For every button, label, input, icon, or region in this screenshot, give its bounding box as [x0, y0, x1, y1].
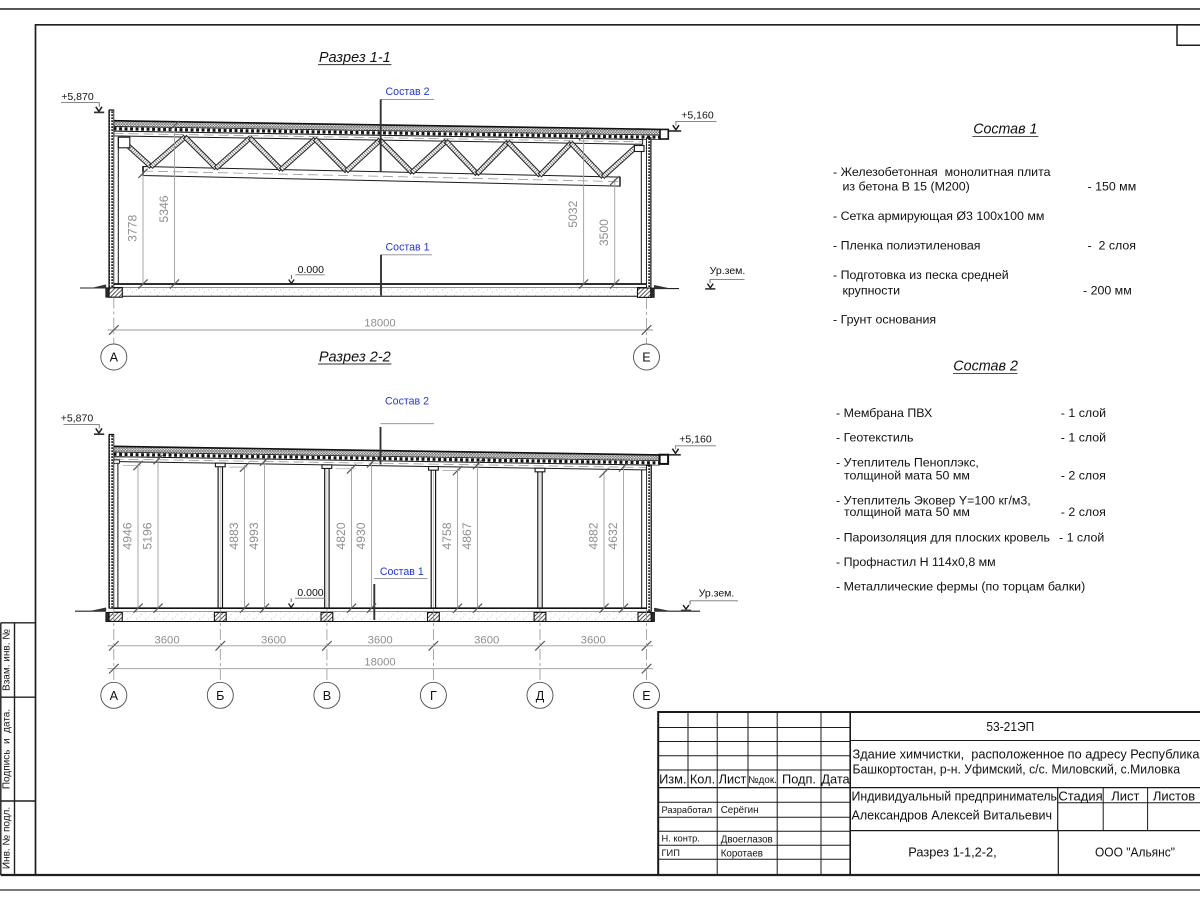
svg-text:+5,160: +5,160 [681, 109, 714, 121]
svg-text:А: А [110, 351, 119, 365]
svg-text:Александров Алексей Витальевич: Александров Алексей Витальевич [852, 808, 1053, 822]
svg-text:4993: 4993 [247, 522, 261, 549]
svg-text:крупности: крупности [843, 283, 901, 297]
svg-text:Ур.зем.: Ур.зем. [699, 588, 735, 600]
svg-text:Г: Г [430, 689, 437, 703]
svg-text:- 1 слой: - 1 слой [1059, 531, 1104, 545]
svg-text:Состав 2: Состав 2 [953, 358, 1018, 375]
svg-text:- Подготовка из песка средней: - Подготовка из песка средней [833, 268, 1009, 282]
svg-text:4883: 4883 [227, 522, 241, 549]
svg-text:Дата: Дата [821, 772, 850, 787]
svg-text:Коротаев: Коротаев [721, 849, 763, 860]
svg-text:- 150 мм: - 150 мм [1088, 180, 1137, 194]
svg-text:Кол.: Кол. [690, 772, 715, 787]
svg-text:- Профнастил Н 114х0,8 мм: - Профнастил Н 114х0,8 мм [836, 555, 996, 569]
svg-text:Листов: Листов [1153, 788, 1195, 803]
svg-text:Лист: Лист [719, 772, 747, 787]
svg-text:Стадия: Стадия [1058, 788, 1102, 803]
svg-text:толщиной мата 50 мм: толщиной мата 50 мм [844, 469, 970, 483]
svg-text:- Мембрана ПВХ: - Мембрана ПВХ [836, 406, 932, 420]
svg-text:Индивидуальный предприниматель: Индивидуальный предприниматель [852, 789, 1058, 803]
svg-text:0.000: 0.000 [298, 264, 324, 276]
svg-text:- 2 слоя: - 2 слоя [1088, 239, 1137, 253]
svg-text:Здание химчистки, расположенн: Здание химчистки, расположенное по адрес… [853, 747, 1200, 761]
svg-text:Б: Б [216, 689, 224, 703]
svg-text:Е: Е [642, 351, 650, 365]
svg-text:5196: 5196 [141, 522, 155, 549]
svg-text:18000: 18000 [364, 317, 395, 329]
svg-text:- Сетка армирующая Ø3 100х100: - Сетка армирующая Ø3 100х100 мм [833, 209, 1044, 223]
svg-text:- Пленка полиэтиленовая: - Пленка полиэтиленовая [833, 239, 981, 253]
svg-text:- 2 слоя: - 2 слоя [1061, 505, 1106, 519]
svg-text:4820: 4820 [334, 522, 348, 549]
svg-text:Состав 1: Состав 1 [973, 121, 1037, 138]
svg-text:4882: 4882 [587, 522, 601, 549]
svg-text:Взам. инв. №: Взам. инв. № [1, 629, 12, 691]
svg-text:Серёгин: Серёгин [721, 805, 759, 816]
svg-text:0.000: 0.000 [297, 587, 323, 599]
svg-text:ООО "Альянс": ООО "Альянс" [1095, 845, 1175, 859]
svg-text:18000: 18000 [364, 657, 395, 669]
svg-text:4758: 4758 [440, 522, 454, 549]
svg-text:- Утеплитель Пеноплэкс,: - Утеплитель Пеноплэкс, [836, 455, 979, 469]
svg-text:- Грунт основания: - Грунт основания [833, 312, 936, 326]
svg-text:- Металлические фермы (по торц: - Металлические фермы (по торцам балки) [836, 580, 1085, 594]
svg-text:из бетона В 15 (М200): из бетона В 15 (М200) [843, 180, 970, 194]
svg-text:Подп.: Подп. [782, 772, 816, 787]
svg-text:- 200 мм: - 200 мм [1083, 283, 1132, 297]
svg-text:- 2 слоя: - 2 слоя [1061, 469, 1106, 483]
svg-text:№док.: №док. [748, 775, 777, 786]
svg-text:Двоеглазов: Двоеглазов [721, 834, 773, 845]
svg-text:4930: 4930 [354, 522, 368, 549]
svg-text:3500: 3500 [597, 219, 611, 246]
svg-text:Ур.зем.: Ур.зем. [710, 265, 746, 277]
svg-text:- 1 слой: - 1 слой [1061, 406, 1106, 420]
svg-text:3600: 3600 [154, 634, 179, 646]
svg-text:- Железобетонная монолитная п: - Железобетонная монолитная плита [833, 165, 1051, 179]
svg-text:5032: 5032 [566, 200, 580, 227]
svg-text:Е: Е [642, 689, 650, 703]
svg-text:Подпись и дата.: Подпись и дата. [1, 709, 12, 789]
svg-text:Состав 1: Состав 1 [380, 566, 424, 578]
svg-text:Д: Д [536, 689, 545, 703]
svg-text:3778: 3778 [126, 215, 140, 242]
svg-text:+5,160: +5,160 [679, 434, 712, 446]
svg-text:- 1 слой: - 1 слой [1061, 431, 1106, 445]
svg-text:Разрез 2-2: Разрез 2-2 [319, 350, 391, 366]
svg-text:Лист: Лист [1111, 788, 1139, 803]
svg-text:3600: 3600 [261, 634, 286, 646]
svg-text:- Геотекстиль: - Геотекстиль [836, 431, 913, 445]
svg-text:А: А [110, 689, 119, 703]
svg-text:5346: 5346 [157, 195, 171, 222]
svg-text:+5,870: +5,870 [61, 91, 94, 103]
svg-text:3600: 3600 [581, 634, 606, 646]
svg-text:Состав 2: Состав 2 [385, 395, 429, 407]
svg-text:Изм.: Изм. [659, 772, 686, 787]
svg-text:3600: 3600 [368, 634, 393, 646]
svg-text:В: В [323, 689, 331, 703]
svg-text:Состав 2: Состав 2 [386, 86, 430, 98]
svg-text:ГИП: ГИП [662, 848, 680, 858]
svg-text:Башкортостан, р-н. Уфимский, с: Башкортостан, р-н. Уфимский, с/с. Миловс… [853, 763, 1181, 777]
svg-text:Состав 1: Состав 1 [386, 241, 430, 253]
svg-text:Разработал: Разработал [662, 805, 713, 815]
svg-text:4946: 4946 [121, 522, 135, 549]
svg-text:4867: 4867 [460, 522, 474, 549]
svg-text:толщиной мата 50 мм: толщиной мата 50 мм [844, 505, 970, 519]
svg-text:4632: 4632 [606, 522, 620, 549]
svg-text:Н. контр.: Н. контр. [662, 834, 700, 844]
svg-text:53-21ЭП: 53-21ЭП [986, 719, 1034, 734]
svg-text:Разрез 1-1,2-2,: Разрез 1-1,2-2, [908, 844, 996, 859]
svg-text:3600: 3600 [474, 634, 499, 646]
svg-text:+5,870: +5,870 [61, 413, 94, 425]
svg-text:- Пароизоляция для плоских кро: - Пароизоляция для плоских кровель [836, 531, 1050, 545]
svg-text:Разрез 1-1: Разрез 1-1 [319, 50, 391, 66]
svg-text:Инв. № подл.: Инв. № подл. [1, 807, 12, 869]
